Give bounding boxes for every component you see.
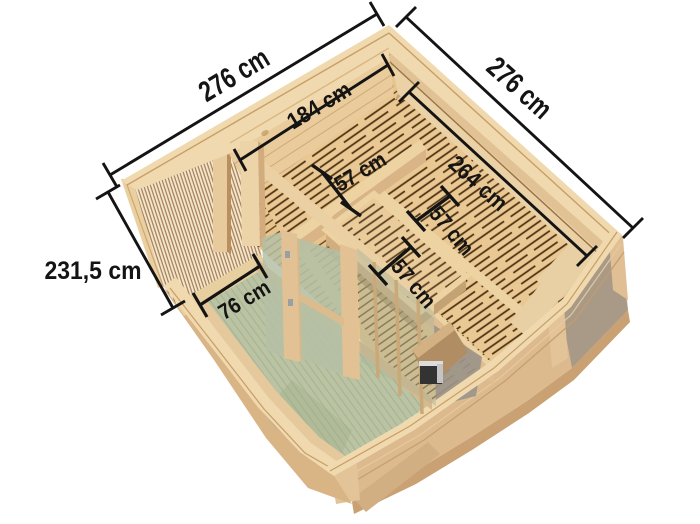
svg-text:231,5 cm: 231,5 cm xyxy=(45,257,142,285)
